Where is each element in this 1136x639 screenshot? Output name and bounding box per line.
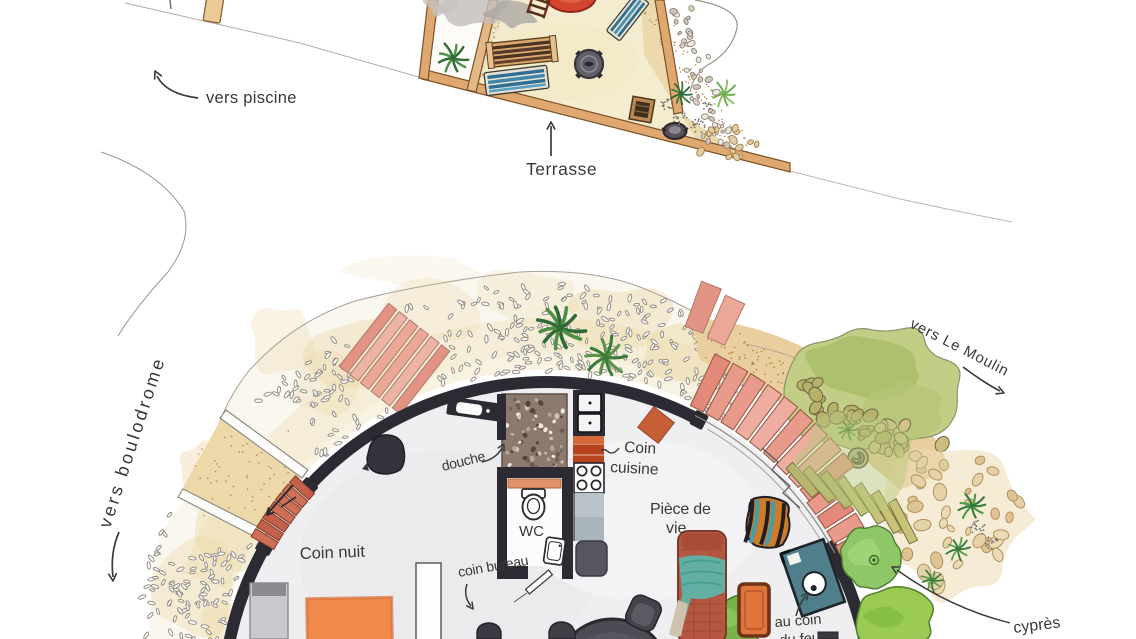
svg-text:cuisine: cuisine [610, 459, 659, 479]
svg-text:vers piscine: vers piscine [206, 89, 297, 107]
svg-text:WC: WC [519, 523, 544, 540]
svg-text:Coin nuit: Coin nuit [299, 543, 365, 563]
svg-text:Pièce de: Pièce de [650, 501, 711, 518]
svg-text:au coin: au coin [774, 612, 822, 631]
svg-text:vie: vie [666, 520, 687, 537]
svg-text:Terrasse: Terrasse [526, 159, 597, 179]
svg-text:Coin: Coin [624, 439, 657, 458]
